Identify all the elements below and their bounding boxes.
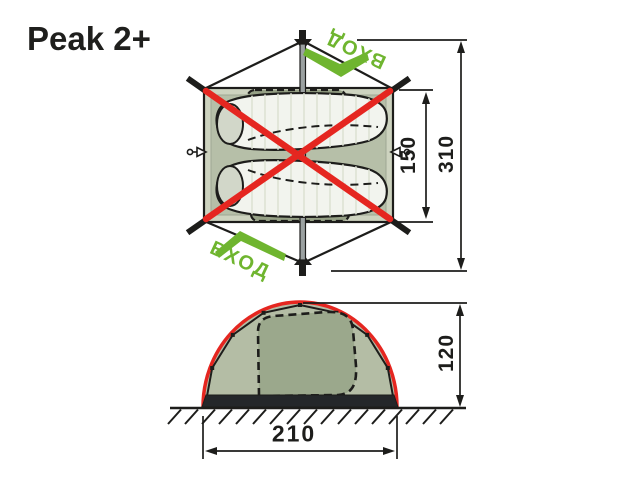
diagram-graphics	[0, 0, 640, 479]
tent-spec-diagram: Peak 2+	[0, 0, 640, 479]
dimension-outer-length: 310	[435, 135, 459, 173]
floor-skirt	[202, 395, 398, 407]
tent-side-view	[168, 302, 467, 459]
dimension-inner-width: 150	[397, 136, 421, 174]
tent-top-view	[187, 30, 467, 276]
ground-line	[168, 408, 466, 424]
dimension-height: 120	[435, 334, 459, 372]
door-panel	[258, 312, 356, 396]
dimension-base-width: 210	[272, 421, 316, 448]
